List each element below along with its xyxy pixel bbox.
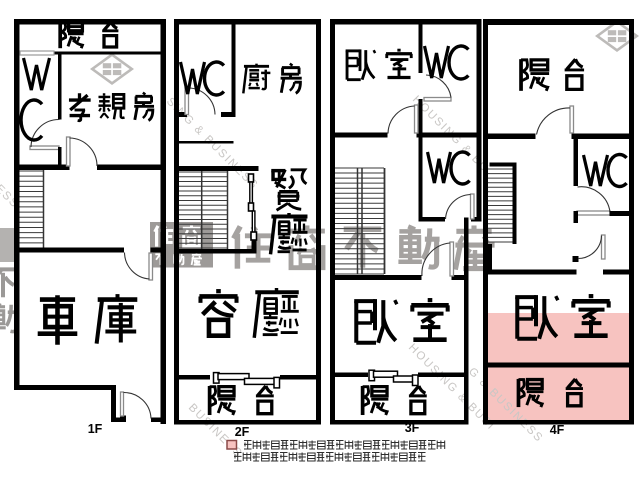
svg-text:3F: 3F — [405, 421, 420, 435]
svg-text:1F: 1F — [88, 422, 103, 436]
svg-text:2F: 2F — [235, 425, 250, 439]
svg-text:4F: 4F — [550, 423, 565, 437]
